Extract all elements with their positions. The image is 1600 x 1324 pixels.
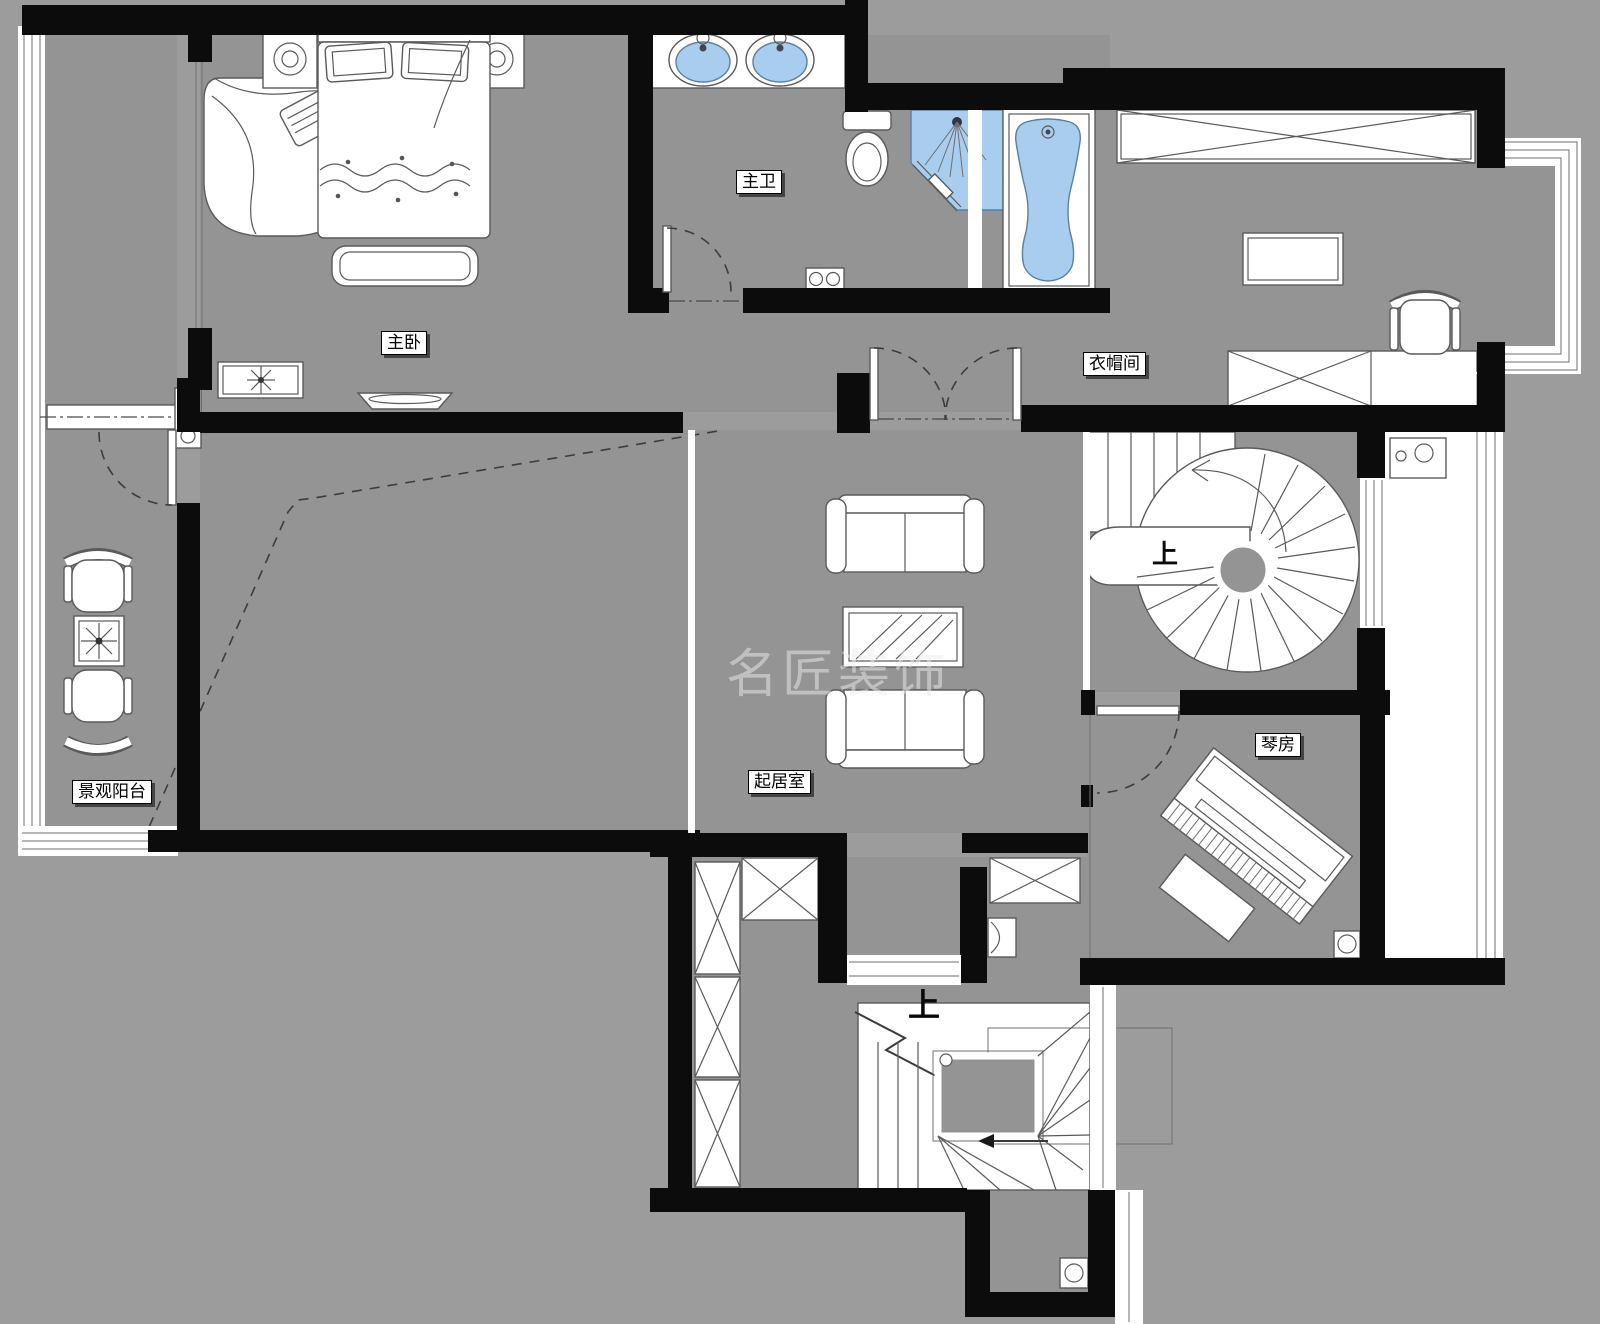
room-label-master-bath: 主卫 [736,170,782,194]
room-label-living-room: 起居室 [748,770,811,794]
wall-dish [358,393,452,409]
room-label-master-bedroom: 主卧 [381,331,427,355]
closet-island [1243,233,1343,285]
room-label-cloakroom: 衣帽间 [1083,352,1146,376]
spiral-stair-up-label: 上 [1152,534,1178,571]
room-label-piano-room: 琴房 [1255,733,1301,757]
dresser [218,362,303,398]
towel-holder [806,268,844,290]
stair-door-opening [847,955,961,985]
balcony-plant-table [74,616,124,666]
vanity-double-sink [651,28,845,88]
wardrobe [1117,110,1475,163]
lower-staircase [855,1003,1172,1190]
room-label-view-balcony: 景观阳台 [72,780,152,804]
toilet [843,111,891,186]
floorplan-canvas: 主卧 主卫 衣帽间 起居室 琴房 景观阳台 上 上 名匠装饰 [0,0,1600,1324]
shower-partition [968,110,982,290]
drain-room [1060,1258,1088,1288]
watermark: 名匠装饰 [726,632,950,707]
bay-window [1477,138,1581,374]
lower-stair-up-label: 上 [908,980,940,1026]
bathtub [1003,108,1095,292]
spiral-east-window [1360,478,1388,628]
sofa-north [826,495,984,573]
desk-chair [1390,296,1460,354]
closet-desk [1228,351,1477,406]
right-window-strip [1385,372,1503,960]
